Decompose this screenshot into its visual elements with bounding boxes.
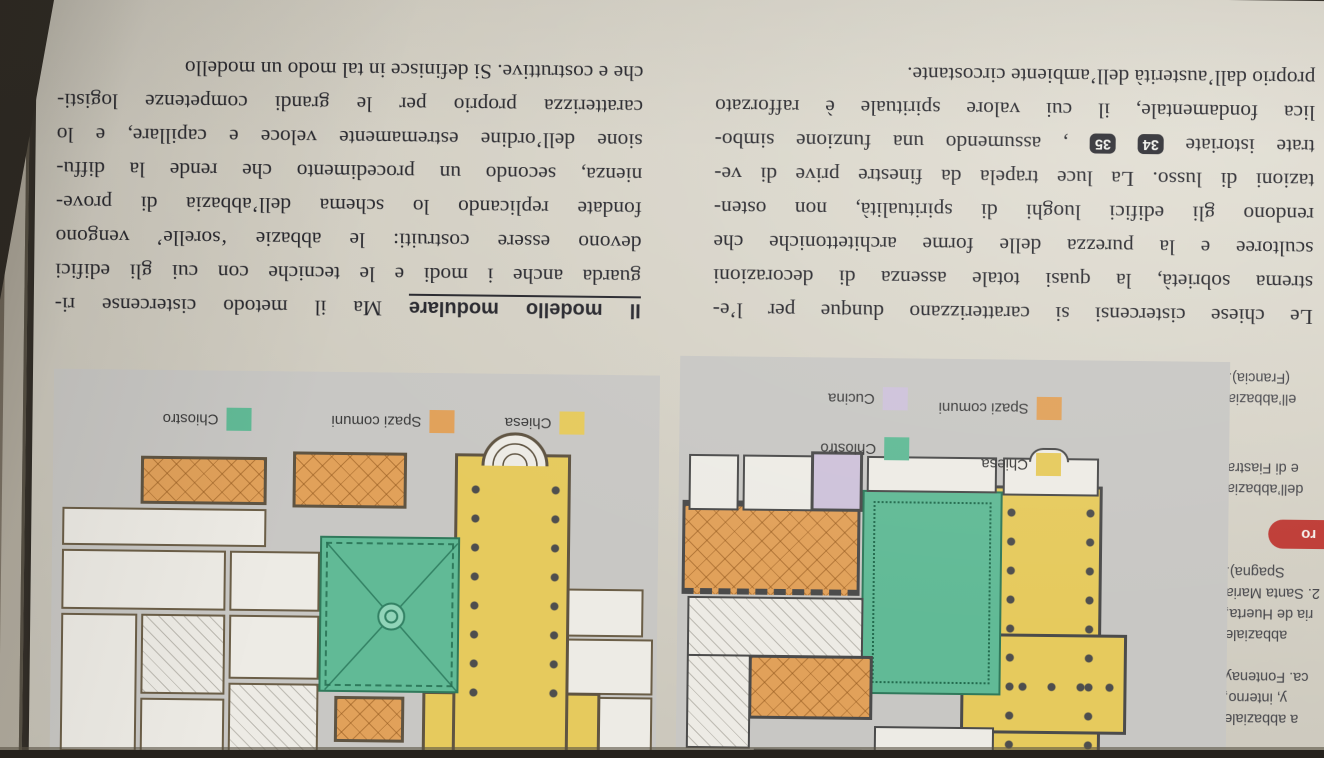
legend-item-chiesa: Chiesa xyxy=(981,452,1061,476)
common-hall xyxy=(748,655,873,720)
body-line: fondate replicando lo schema dell’abbazi… xyxy=(56,181,642,222)
legend-label: Chiostro xyxy=(820,439,876,457)
body-line: devono essere costruiti: le abbazie ‘sor… xyxy=(55,215,641,256)
figure-ref-badge-34: 34 xyxy=(1138,134,1164,154)
caption-line: dell’abbazia xyxy=(1227,477,1323,499)
caption-fragment-fontenay-interno: a abbaziale y, interno, ca. Fontenay xyxy=(1224,665,1321,729)
kitchen xyxy=(810,451,863,512)
room xyxy=(60,613,138,752)
heading-line: Il modello modulare Ma il metodo cisterc… xyxy=(55,283,641,324)
legend-label: Spazi comuni xyxy=(331,412,421,430)
body-line: tazioni di lusso. La luce trapela da fin… xyxy=(714,152,1314,193)
book-page-rotated-180: a abbaziale y, interno, ca. Fontenay abb… xyxy=(29,0,1324,758)
figure-number-fragment xyxy=(1119,751,1153,758)
room xyxy=(140,698,225,753)
legend-swatch-cucina xyxy=(883,387,908,410)
body-line: guarda anche i modi e le tecniche con cu… xyxy=(55,249,641,290)
common-hall xyxy=(292,451,407,508)
caption-line: y, interno, xyxy=(1224,686,1320,708)
body-line: Le chiese cistercensi si caratterizzano … xyxy=(713,288,1313,329)
cloister-arcade xyxy=(872,501,992,684)
room xyxy=(565,589,644,638)
legend-swatch-chiesa xyxy=(559,411,584,434)
cloister xyxy=(318,536,460,694)
room xyxy=(687,596,864,658)
legend-item-spazi-comuni: Spazi comuni xyxy=(938,396,1061,420)
text-column-left: Le chiese cistercensi si caratterizzano … xyxy=(713,50,1316,329)
page-content: a abbaziale y, interno, ca. Fontenay abb… xyxy=(0,0,1324,758)
run-in-heading: Il modello modulare xyxy=(409,294,641,322)
figure-ref-badge-35: 35 xyxy=(1090,133,1116,153)
room xyxy=(753,749,861,758)
legend-swatch-chiostro xyxy=(884,437,909,460)
body-text: Ma il metodo cistercense ri- xyxy=(55,293,382,321)
cloister-arcade xyxy=(324,542,454,687)
body-line: nienza, secondo un procedimento che rend… xyxy=(56,147,642,188)
body-line: rendono gli edifici luoghi di spirituali… xyxy=(714,186,1314,227)
legend-item-chiostro: Chiostro xyxy=(820,436,909,460)
legend-label: Chiostro xyxy=(163,410,219,428)
body-line-with-badges: trate istoriate 34 35 , assumendo una fu… xyxy=(715,118,1315,159)
caption-line: a abbaziale xyxy=(1224,707,1320,729)
body-line: sione dell’ordine estremamente veloce e … xyxy=(57,113,643,154)
cloister-gallery xyxy=(867,456,997,493)
caption-line: ca. Fontenay xyxy=(1225,665,1321,687)
legend-swatch-chiesa xyxy=(1036,453,1061,476)
caption-line: abbaziale xyxy=(1225,623,1321,645)
caption-line: ria de Huerta, xyxy=(1225,602,1321,624)
room xyxy=(61,549,226,611)
body-line: scultoree e la purezza delle forme archi… xyxy=(713,220,1313,261)
legend-label: Cucina xyxy=(828,389,875,407)
legend-label: Spazi comuni xyxy=(939,399,1029,417)
body-text: trate istoriate xyxy=(1185,134,1314,159)
corridor xyxy=(62,507,266,547)
caption-fragment-santa-maria-huerta: abbaziale ria de Huerta, 2. Santa Maria … xyxy=(1225,560,1322,645)
caption-line: (Francia). xyxy=(1228,366,1324,388)
red-badge-fragment: ro xyxy=(1268,519,1324,549)
room xyxy=(229,615,320,680)
legend-item-spazi-comuni: Spazi comuni xyxy=(331,409,454,433)
floorplan-panel-a: Chiesa Chiostro Spazi comuni Cucina xyxy=(675,356,1230,758)
room xyxy=(688,454,739,511)
room xyxy=(564,639,653,696)
caption-fragment-fiastra: dell’abbazia e di Fiastra xyxy=(1227,456,1323,499)
room xyxy=(873,726,994,758)
body-line: che e costruttive. Si definisce in tal m… xyxy=(57,45,643,86)
legend-item-chiesa: Chiesa xyxy=(505,411,585,435)
room xyxy=(140,614,225,695)
legend-label: Chiesa xyxy=(505,414,552,432)
caption-line: ell’abbazia xyxy=(1228,387,1324,409)
legend-item-chiostro: Chiostro xyxy=(163,407,252,431)
body-line: lica fondamentale, il cui valore spiritu… xyxy=(715,84,1315,125)
legend-swatch-spazi-comuni xyxy=(429,410,454,433)
caption-line: Spagna). xyxy=(1226,560,1322,582)
caption-line: e di Fiastra xyxy=(1227,456,1323,478)
body-text: , assumendo una funzione simbo- xyxy=(715,128,1069,156)
legend-item-cucina: Cucina xyxy=(828,386,908,410)
body-line: caratterizza proprio per le grandi compe… xyxy=(57,79,643,120)
legend-swatch-chiostro xyxy=(226,408,251,431)
cloister xyxy=(860,490,1002,696)
caption-line: 2. Santa Maria xyxy=(1225,581,1321,603)
legend-label: Chiesa xyxy=(981,455,1028,473)
photo-of-book-page: a abbaziale y, interno, ca. Fontenay abb… xyxy=(0,0,1324,758)
caption-fragment-francia: ell’abbazia (Francia). xyxy=(1228,366,1324,409)
floorplan-panel-b: Chiesa Spazi comuni Chiostro xyxy=(49,369,660,758)
room xyxy=(742,455,813,512)
room xyxy=(228,683,319,754)
legend-swatch-spazi-comuni xyxy=(1037,397,1062,420)
body-line: strema sobrietà, la quasi totale assenza… xyxy=(713,254,1313,295)
text-column-right: Il modello modulare Ma il metodo cisterc… xyxy=(55,45,644,324)
common-hall xyxy=(141,456,268,505)
refectory-hall xyxy=(682,500,861,596)
common-hall xyxy=(334,696,405,743)
room xyxy=(229,551,320,612)
body-line: proprio dall’austerità dell’ambiente cir… xyxy=(715,50,1315,91)
